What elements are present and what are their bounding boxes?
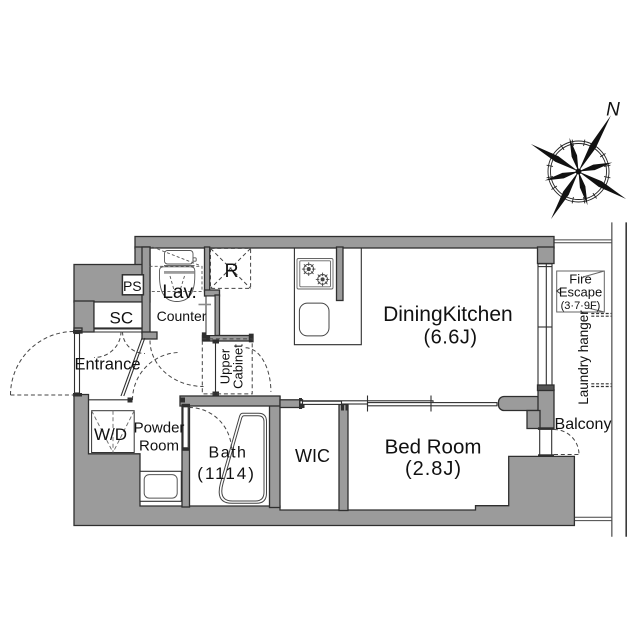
svg-text:(3·7·9F): (3·7·9F) bbox=[561, 300, 601, 312]
svg-text:Powder: Powder bbox=[134, 420, 185, 437]
svg-text:PS: PS bbox=[123, 278, 142, 294]
svg-text:Counter: Counter bbox=[157, 308, 207, 324]
svg-text:WIC: WIC bbox=[295, 446, 330, 466]
svg-text:Lav.: Lav. bbox=[162, 282, 197, 303]
svg-text:Entrance: Entrance bbox=[74, 356, 140, 374]
svg-text:DiningKitchen: DiningKitchen bbox=[383, 303, 513, 326]
svg-text:Laundry hanger: Laundry hanger bbox=[576, 310, 591, 405]
svg-text:N: N bbox=[606, 100, 620, 121]
svg-text:(2.8J): (2.8J) bbox=[405, 458, 462, 480]
svg-text:Bed Room: Bed Room bbox=[385, 436, 482, 459]
svg-text:(1114): (1114) bbox=[197, 464, 256, 483]
svg-text:Cabinet: Cabinet bbox=[231, 344, 246, 389]
svg-text:R: R bbox=[224, 260, 238, 282]
svg-text:SC: SC bbox=[109, 308, 133, 327]
svg-text:Escape: Escape bbox=[559, 285, 602, 300]
svg-text:(6.6J): (6.6J) bbox=[423, 327, 477, 349]
svg-text:Balcony: Balcony bbox=[555, 416, 612, 433]
svg-text:Bath: Bath bbox=[209, 445, 248, 462]
svg-text:W/D: W/D bbox=[94, 425, 127, 444]
svg-text:Room: Room bbox=[139, 438, 179, 455]
